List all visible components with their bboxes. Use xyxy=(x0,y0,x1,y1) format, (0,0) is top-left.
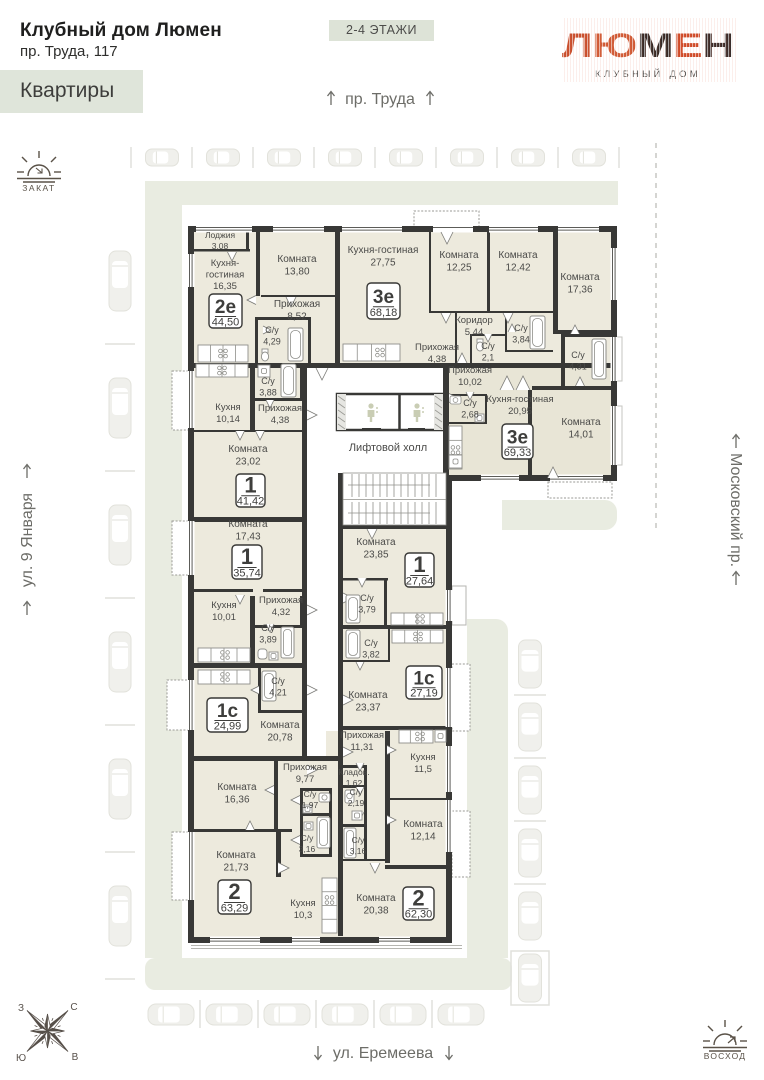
svg-text:44,50: 44,50 xyxy=(212,316,240,328)
svg-text:1: 1 xyxy=(413,552,425,577)
svg-text:10,14: 10,14 xyxy=(216,414,240,425)
svg-text:С/у: С/у xyxy=(571,350,585,360)
svg-text:3,89: 3,89 xyxy=(259,635,277,645)
svg-text:11,5: 11,5 xyxy=(414,764,432,775)
svg-text:Ю: Ю xyxy=(16,1053,26,1064)
svg-text:С: С xyxy=(70,1002,77,1013)
svg-text:4,31: 4,31 xyxy=(569,362,587,372)
svg-text:23,85: 23,85 xyxy=(363,550,388,561)
svg-text:4,38: 4,38 xyxy=(271,415,290,426)
svg-text:Кухня-гостиная: Кухня-гостиная xyxy=(348,245,419,256)
svg-text:3,08: 3,08 xyxy=(212,241,229,251)
svg-text:3,16: 3,16 xyxy=(299,844,316,854)
svg-text:Кухня: Кухня xyxy=(211,600,236,611)
svg-text:5,44: 5,44 xyxy=(465,327,484,338)
svg-text:Комната: Комната xyxy=(403,819,443,830)
svg-text:63,29: 63,29 xyxy=(221,902,249,914)
svg-text:12,25: 12,25 xyxy=(446,263,471,274)
svg-text:12,42: 12,42 xyxy=(505,263,530,274)
svg-text:В: В xyxy=(72,1052,79,1063)
svg-text:Комната: Комната xyxy=(356,893,396,904)
svg-text:3,88: 3,88 xyxy=(259,388,277,398)
svg-text:68,18: 68,18 xyxy=(370,307,398,319)
svg-text:4,21: 4,21 xyxy=(269,688,287,698)
svg-text:3,82: 3,82 xyxy=(362,650,380,660)
svg-text:21,73: 21,73 xyxy=(223,863,248,874)
svg-text:9,77: 9,77 xyxy=(296,774,315,785)
svg-text:Комната: Комната xyxy=(228,519,268,530)
svg-text:С/у: С/у xyxy=(481,341,495,351)
svg-text:Комната: Комната xyxy=(348,690,388,701)
svg-text:1с: 1с xyxy=(217,701,239,722)
svg-text:23,02: 23,02 xyxy=(235,457,260,468)
svg-text:24,99: 24,99 xyxy=(214,720,242,732)
svg-text:27,19: 27,19 xyxy=(410,687,438,699)
svg-text:Кухня-гостиная: Кухня-гостиная xyxy=(486,394,553,405)
svg-text:ЛЮМЕН: ЛЮМЕН xyxy=(562,27,734,65)
svg-text:Коридор: Коридор xyxy=(455,315,493,326)
svg-text:С/у: С/у xyxy=(271,676,285,686)
svg-text:Прихожая: Прихожая xyxy=(274,299,320,310)
svg-text:С/у: С/у xyxy=(360,593,374,603)
svg-text:13,80: 13,80 xyxy=(284,267,309,278)
svg-text:ЗАКАТ: ЗАКАТ xyxy=(22,183,55,193)
svg-text:З: З xyxy=(18,1003,24,1014)
svg-text:3,16: 3,16 xyxy=(350,846,367,856)
svg-text:Комната: Комната xyxy=(260,720,300,731)
svg-text:14,01: 14,01 xyxy=(568,430,593,441)
svg-text:Комната: Комната xyxy=(498,250,538,261)
svg-text:3е: 3е xyxy=(373,287,394,308)
svg-text:2,68: 2,68 xyxy=(461,410,479,420)
svg-text:17,43: 17,43 xyxy=(235,532,260,543)
svg-text:Комната: Комната xyxy=(356,537,396,548)
svg-text:2е: 2е xyxy=(215,297,236,318)
svg-text:11,31: 11,31 xyxy=(350,742,373,753)
svg-text:пр. Труда: пр. Труда xyxy=(345,91,415,108)
svg-text:Комната: Комната xyxy=(277,254,317,265)
svg-text:Кладов.: Кладов. xyxy=(338,767,369,777)
svg-text:Прихожая: Прихожая xyxy=(259,595,303,606)
svg-text:Кухня: Кухня xyxy=(410,752,435,763)
svg-text:8,52: 8,52 xyxy=(287,312,307,323)
svg-text:17,36: 17,36 xyxy=(567,285,592,296)
svg-text:Лифтовой холл: Лифтовой холл xyxy=(349,442,427,454)
svg-text:ВОСХОД: ВОСХОД xyxy=(704,1051,746,1061)
svg-text:69,33: 69,33 xyxy=(504,447,532,459)
svg-text:Прихожая: Прихожая xyxy=(415,342,459,353)
svg-text:41,42: 41,42 xyxy=(237,495,265,507)
svg-text:С/у: С/у xyxy=(463,398,477,408)
svg-text:С/у: С/у xyxy=(514,323,528,333)
svg-text:2,19: 2,19 xyxy=(348,798,365,808)
svg-text:С/у: С/у xyxy=(261,376,275,386)
svg-text:1: 1 xyxy=(244,472,256,497)
svg-text:20,95: 20,95 xyxy=(508,406,532,417)
svg-text:С/у: С/у xyxy=(265,325,279,335)
svg-text:Прихожая: Прихожая xyxy=(258,403,302,414)
svg-text:Московский пр.: Московский пр. xyxy=(727,453,744,567)
svg-text:62,30: 62,30 xyxy=(405,908,433,920)
svg-text:С/у: С/у xyxy=(352,835,366,845)
svg-text:1,97: 1,97 xyxy=(302,800,319,810)
svg-text:4,38: 4,38 xyxy=(428,354,447,365)
svg-text:Комната: Комната xyxy=(560,272,600,283)
svg-text:2: 2 xyxy=(228,879,240,904)
svg-text:С/у: С/у xyxy=(304,789,318,799)
svg-text:Прихожая: Прихожая xyxy=(340,730,384,741)
svg-text:4,32: 4,32 xyxy=(272,607,291,618)
svg-text:Комната: Комната xyxy=(216,850,256,861)
svg-text:10,01: 10,01 xyxy=(212,612,236,623)
svg-text:КЛУБНЫЙ ДОМ: КЛУБНЫЙ ДОМ xyxy=(595,68,701,80)
svg-text:Кухня-: Кухня- xyxy=(211,258,240,269)
svg-text:Комната: Комната xyxy=(561,417,601,428)
svg-text:20,78: 20,78 xyxy=(267,733,292,744)
svg-text:27,75: 27,75 xyxy=(370,258,395,269)
svg-text:Кухня: Кухня xyxy=(290,898,315,909)
svg-text:гостиная: гостиная xyxy=(206,270,245,281)
svg-text:10,3: 10,3 xyxy=(294,910,313,921)
svg-text:Прихожая: Прихожая xyxy=(283,762,327,773)
svg-text:3,84: 3,84 xyxy=(512,335,530,345)
svg-text:27,64: 27,64 xyxy=(406,575,434,587)
svg-text:С/у: С/у xyxy=(350,787,364,797)
svg-text:35,74: 35,74 xyxy=(233,567,261,579)
svg-text:4,29: 4,29 xyxy=(263,337,281,347)
svg-text:Лоджия: Лоджия xyxy=(205,230,236,240)
svg-text:12,14: 12,14 xyxy=(410,832,435,843)
svg-text:3е: 3е xyxy=(507,428,528,449)
svg-text:23,37: 23,37 xyxy=(355,703,380,714)
svg-text:ул. Еремеева: ул. Еремеева xyxy=(333,1045,433,1062)
svg-text:1: 1 xyxy=(241,544,253,569)
svg-text:10,02: 10,02 xyxy=(458,377,482,388)
svg-text:Комната: Комната xyxy=(228,444,268,455)
svg-text:16,35: 16,35 xyxy=(213,281,237,292)
svg-text:20,38: 20,38 xyxy=(363,906,388,917)
svg-text:С/у: С/у xyxy=(301,833,315,843)
svg-text:ул. 9 Января: ул. 9 Января xyxy=(19,493,36,587)
svg-text:Кухня: Кухня xyxy=(215,402,240,413)
svg-text:Прихожая: Прихожая xyxy=(448,365,492,376)
svg-text:2: 2 xyxy=(412,885,424,910)
svg-text:С/у: С/у xyxy=(261,623,275,633)
svg-text:2,1: 2,1 xyxy=(482,353,495,363)
svg-text:Комната: Комната xyxy=(217,782,257,793)
svg-text:1с: 1с xyxy=(413,668,435,689)
svg-text:3,79: 3,79 xyxy=(358,605,376,615)
svg-text:С/у: С/у xyxy=(364,638,378,648)
svg-text:Комната: Комната xyxy=(439,250,479,261)
svg-text:16,36: 16,36 xyxy=(224,795,249,806)
